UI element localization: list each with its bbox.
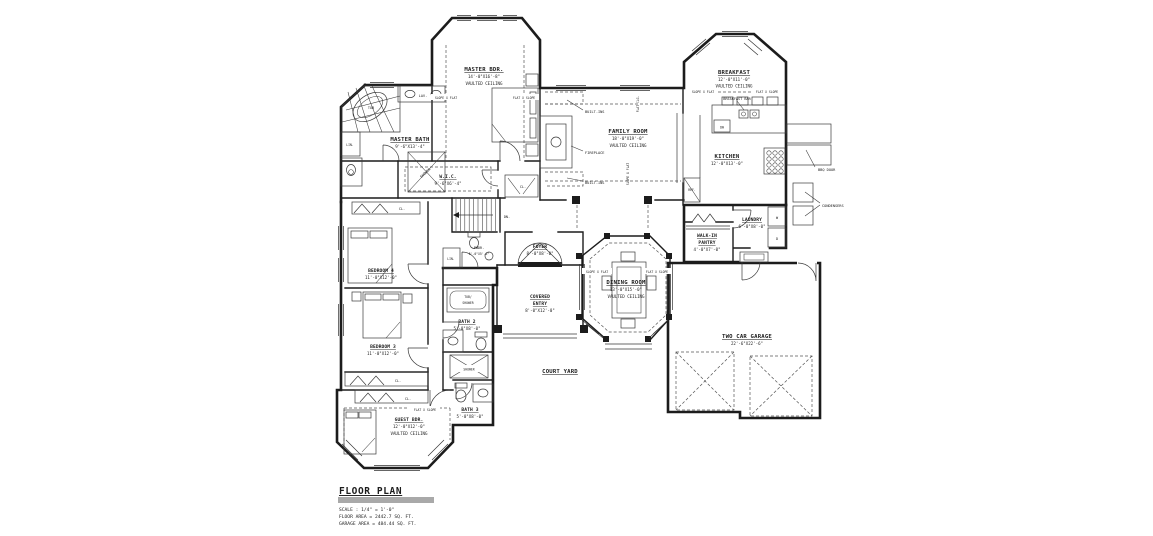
kitchen-fixtures — [677, 97, 786, 202]
label-tub-shower-1: TUB/ — [464, 295, 472, 299]
dim-bedroom4: 11'-0"X12'-0" — [365, 275, 397, 280]
note-guest-bedroom: VAULTED CEILING — [391, 431, 429, 436]
label-garage: TWO CAR GARAGE — [722, 334, 772, 340]
label-powder-room: PWDR. — [474, 246, 485, 250]
dim-laundry: 6'-0"X8'-0" — [738, 224, 765, 229]
label-master-bedroom: MASTER BDR. — [464, 67, 503, 73]
entry-fixtures — [503, 243, 577, 338]
dim-covered-entry: 8'-0"X12'-0" — [525, 308, 555, 313]
family-room-fixtures — [540, 100, 583, 181]
drawing-scale: SCALE : 1/4" = 1'-0" — [339, 507, 394, 513]
label-pantry-2: PANTRY — [698, 240, 715, 246]
label-dining-room: DINING ROOM — [606, 280, 646, 286]
dim-pantry: 4'-0"X7'-0" — [693, 247, 720, 252]
label-tub-shower-2: SHOWER — [462, 301, 473, 305]
label-covered-entry-1: COVERED — [530, 294, 550, 300]
label-foyer: FOYER — [533, 244, 547, 250]
dim-foyer: 8'-0"X8'-0" — [526, 251, 553, 256]
floor-plan-drawing: MASTER BDR. 14'-0"X16'-8" VAULTED CEILIN… — [0, 0, 1153, 536]
label-breakfast-bar: BREAKFAST BAR — [723, 97, 751, 101]
dim-bath3: 5'-0"X8'-0" — [456, 414, 483, 419]
label-shower-hall: SHOWER — [463, 368, 474, 372]
powder-room-fixtures — [462, 232, 493, 268]
garage-fixtures — [797, 261, 817, 281]
label-bedroom3: BEDROOM 3 — [370, 344, 396, 350]
label-fireplace: FIREPLACE — [585, 151, 604, 155]
dim-master-bath: 9'-6"X13'-4" — [395, 144, 425, 149]
dim-master-bedroom: 14'-0"X16'-8" — [468, 74, 500, 79]
label-bbq-door: BBQ DOOR — [818, 168, 836, 172]
title-underbar — [338, 497, 434, 503]
hall-shower — [450, 355, 488, 378]
label-family-room: FAMILY ROOM — [608, 129, 648, 135]
note-master-bedroom: VAULTED CEILING — [466, 81, 504, 86]
note-slope-flat-breakfast-left: SLOPE X FLAT — [692, 90, 714, 94]
label-built-ins-lower: BUILT-INS — [585, 181, 604, 185]
label-dishwasher: DW — [720, 126, 724, 130]
label-linen-hall: LIN. — [447, 257, 455, 261]
dim-guest-bedroom: 12'-0"X12'-0" — [393, 424, 425, 429]
label-bath2: BATH 2 — [458, 319, 475, 325]
label-wic: W.I.C. — [439, 174, 456, 180]
label-bedroom4: BEDROOM 4 — [368, 268, 394, 274]
note-dining-room: VAULTED CEILING — [608, 294, 646, 299]
floor-plan-sheet: MASTER BDR. 14'-0"X16'-8" VAULTED CEILIN… — [0, 0, 1153, 536]
dining-room-furniture — [602, 252, 656, 349]
label-closet-bedroom4: CL. — [399, 207, 405, 211]
dim-wic: 9'-6"X6'-4" — [434, 181, 461, 186]
dim-breakfast: 12'-0"X11'-0" — [718, 77, 750, 82]
note-slope-flat-family: SLOPE X FLAT — [626, 163, 630, 185]
label-bath3: BATH 3 — [461, 407, 478, 413]
dim-dining-room: 13'-0"X15'-0" — [610, 287, 642, 292]
master-bedroom-furniture — [492, 74, 538, 161]
label-breakfast: BREAKFAST — [718, 70, 751, 76]
label-closet-bedroom3: CL. — [395, 379, 401, 383]
label-condensers: CONDENSERS — [822, 204, 844, 208]
label-laundry: LAUNDRY — [742, 217, 762, 223]
dim-bath2: 5'-0"X8'-0" — [453, 326, 480, 331]
label-master-bath: MASTER BATH — [390, 137, 429, 143]
interior-walls — [337, 85, 750, 390]
label-pantry-1: WALK-IN — [697, 233, 717, 239]
drawing-floor-area: FLOOR AREA = 2442.7 SQ. FT. — [339, 514, 414, 520]
dim-powder-room: 5'-0"X5'-6" — [469, 252, 490, 256]
label-guest-bedroom: GUEST BDR. — [395, 417, 424, 423]
note-flat-slope-master-right: FLAT X SLOPE — [513, 96, 535, 100]
bedroom3-furniture — [345, 292, 428, 386]
dim-garage: 22'-6"X22'-6" — [731, 341, 763, 346]
label-refrigerator: REF. — [688, 188, 696, 192]
dim-bedroom3: 11'-0"X12'-0" — [367, 351, 399, 356]
note-flat-slope-guest: FLAT X SLOPE — [414, 408, 436, 412]
note-slope-flat-dining-left: SLOPE X FLAT — [586, 270, 608, 274]
label-closet-hall: CL. — [520, 185, 526, 189]
label-washer: W — [776, 216, 779, 220]
label-lav: LAV. — [419, 94, 427, 98]
ceiling-note-labels: SLOPE X FLAT FLAT X SLOPE SLOPE X FLAT F… — [414, 90, 778, 412]
title-block: FLOOR PLAN SCALE : 1/4" = 1'-0" FLOOR AR… — [338, 486, 434, 527]
stairs — [453, 199, 496, 231]
drawing-garage-area: GARAGE AREA = 484.44 SQ. FT. — [339, 521, 416, 527]
note-flat-clg-family: FLAT CLG. — [636, 95, 640, 112]
label-backgrounds — [409, 88, 782, 412]
label-shower-master: SHOWER — [419, 167, 432, 179]
label-covered-entry-2: ENTRY — [533, 301, 547, 307]
room-labels: MASTER BDR. 14'-0"X16'-8" VAULTED CEILIN… — [365, 67, 772, 436]
note-family-room: VAULTED CEILING — [610, 143, 648, 148]
outdoor-equipment — [787, 124, 831, 225]
note-flat-slope-dining-right: FLAT X SLOPE — [646, 270, 668, 274]
note-slope-flat-master-left: SLOPE X FLAT — [435, 96, 457, 100]
note-flat-slope-breakfast-right: FLAT X SLOPE — [756, 90, 778, 94]
label-dryer: D — [776, 237, 778, 241]
bath3-fixtures — [455, 383, 493, 402]
dim-family-room: 18'-0"X19'-0" — [612, 136, 644, 141]
label-tub: TUB — [368, 106, 374, 110]
label-built-ins-upper: BUILT-INS — [585, 110, 604, 114]
label-court-yard: COURT YARD — [542, 369, 578, 375]
label-kitchen: KITCHEN — [715, 154, 740, 160]
label-closet-guest: CL. — [405, 397, 411, 401]
drawing-title: FLOOR PLAN — [339, 486, 402, 497]
note-breakfast: VAULTED CEILING — [716, 84, 754, 89]
label-linen-master: LIN. — [346, 143, 354, 147]
wic-door — [482, 170, 498, 186]
label-stairs-down: DN. — [504, 215, 510, 219]
dim-kitchen: 12'-0"X13'-0" — [711, 161, 743, 166]
